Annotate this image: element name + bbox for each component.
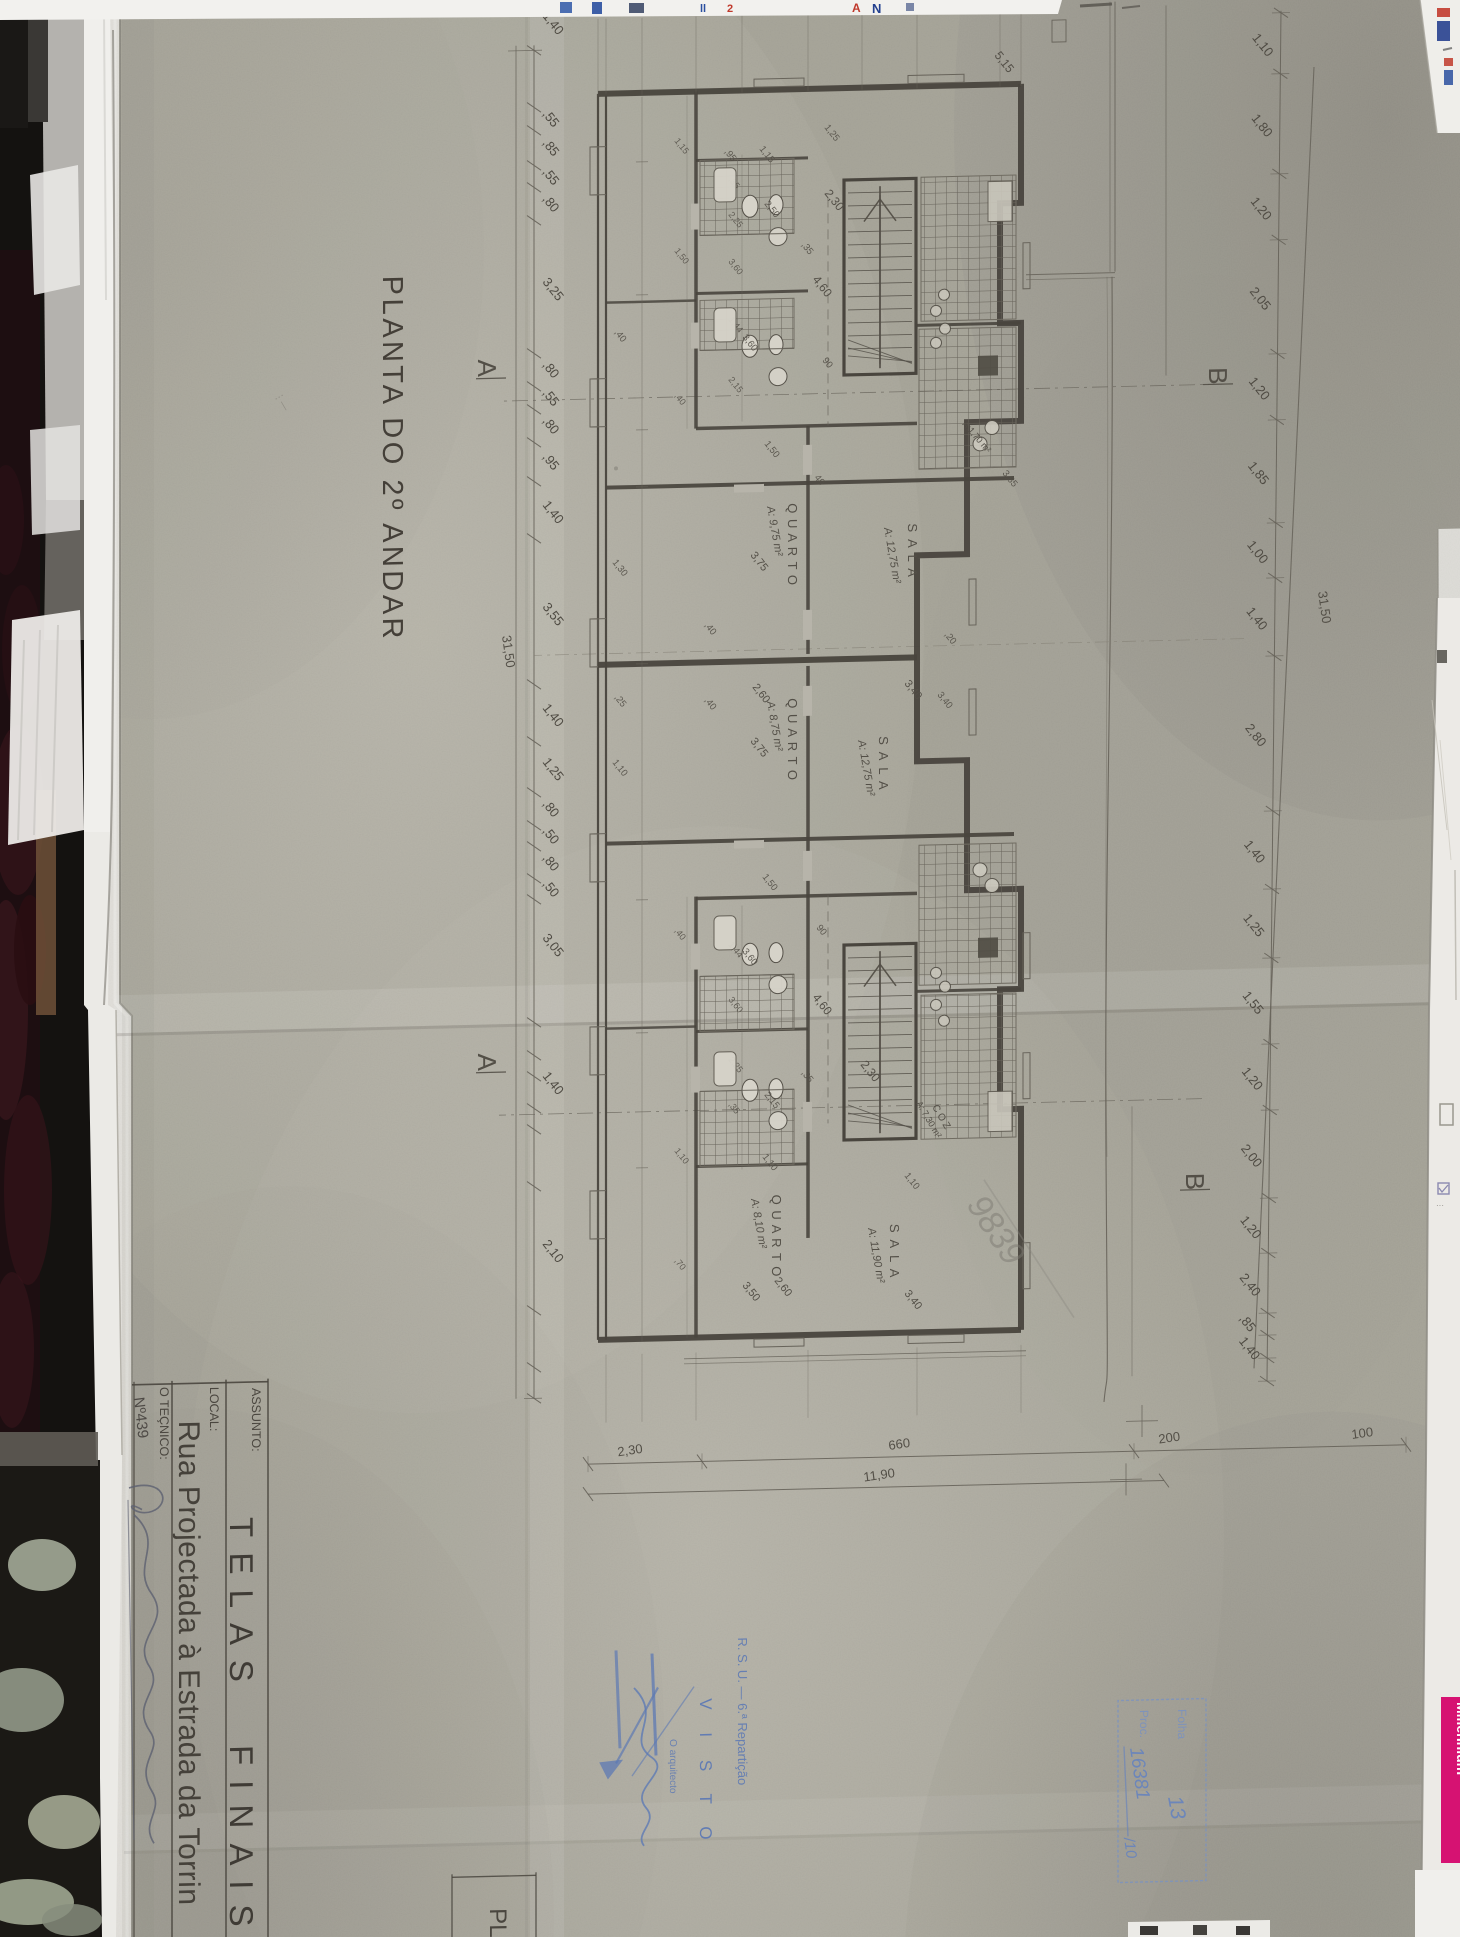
svg-text:A: A: [852, 1, 861, 15]
svg-text:Millennium: Millennium: [1454, 1702, 1460, 1775]
svg-text:ll: ll: [700, 3, 706, 15]
svg-text:2: 2: [727, 3, 733, 15]
svg-text:···: ···: [1436, 1201, 1444, 1210]
svg-text:N: N: [872, 1, 881, 16]
